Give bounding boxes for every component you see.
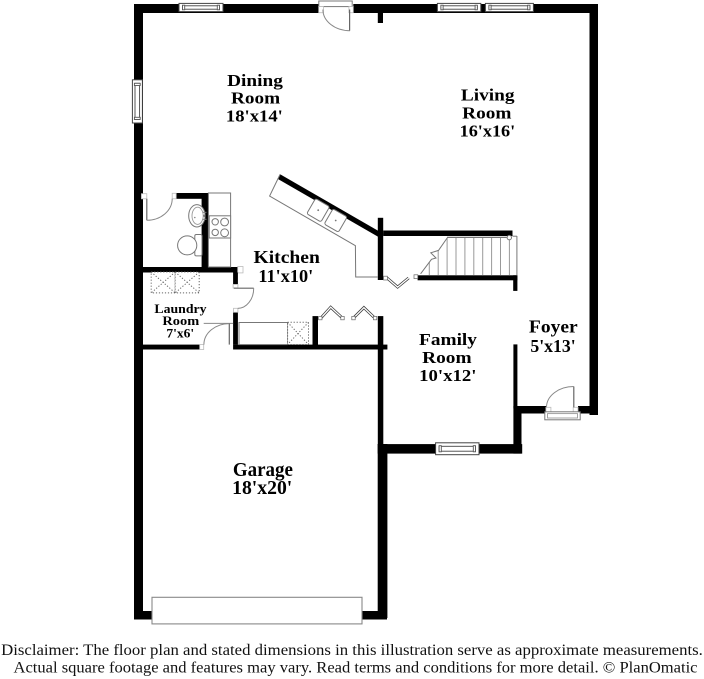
svg-text:16'x16': 16'x16' bbox=[460, 121, 516, 140]
svg-text:Family: Family bbox=[419, 330, 477, 349]
svg-text:7'x6': 7'x6' bbox=[166, 326, 194, 341]
svg-text:Room: Room bbox=[462, 104, 511, 123]
svg-text:18'x20': 18'x20' bbox=[232, 477, 292, 499]
svg-text:11'x10': 11'x10' bbox=[258, 266, 313, 286]
svg-text:Foyer: Foyer bbox=[529, 316, 578, 336]
svg-text:Kitchen: Kitchen bbox=[254, 247, 321, 267]
svg-text:10'x12': 10'x12' bbox=[419, 366, 476, 385]
svg-text:5'x13': 5'x13' bbox=[530, 336, 575, 356]
svg-text:Room: Room bbox=[422, 348, 472, 367]
svg-text:Dining: Dining bbox=[227, 71, 283, 90]
svg-text:Room: Room bbox=[231, 89, 280, 108]
svg-text:Living: Living bbox=[461, 86, 515, 105]
svg-text:Disclaimer: The floor plan and: Disclaimer: The floor plan and stated di… bbox=[1, 642, 703, 659]
svg-text:18'x14': 18'x14' bbox=[226, 107, 283, 126]
svg-text:Actual square footage and feat: Actual square footage and features may v… bbox=[14, 660, 698, 677]
